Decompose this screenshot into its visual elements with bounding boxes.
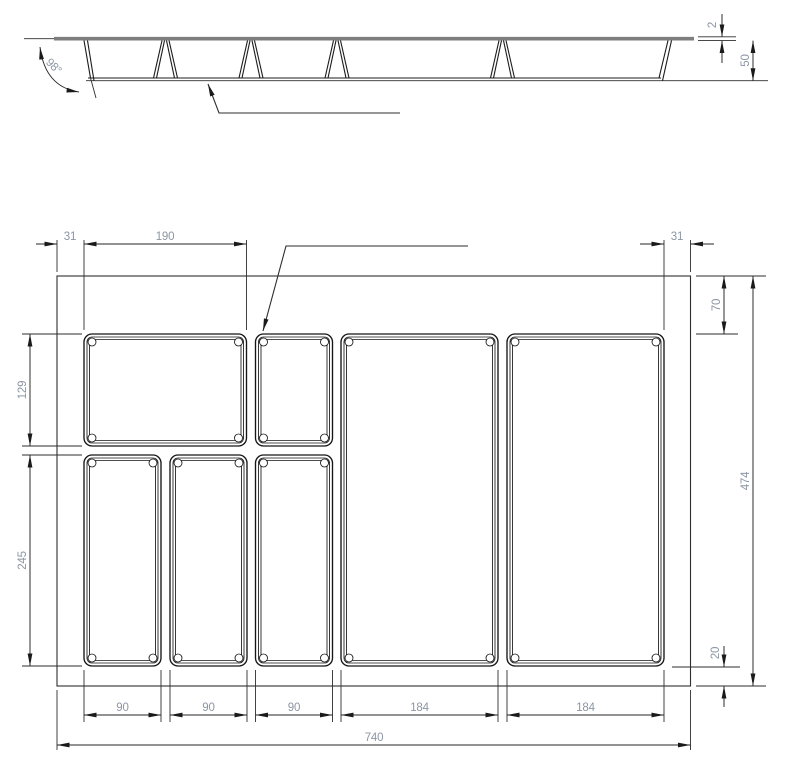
dim-label-col-2: 90 <box>202 702 214 714</box>
right-outer-wall <box>659 41 672 81</box>
left-outer-wall <box>84 41 96 99</box>
technical-drawing: 98° 2 50 <box>0 0 800 768</box>
dim-label-col-1: 90 <box>116 702 128 714</box>
rim-thickness-dimension: 2 <box>698 14 736 63</box>
dim-label-overall-depth: 474 <box>740 471 752 490</box>
tray-outline <box>57 276 691 686</box>
right-dimensions: 70 474 20 <box>672 276 766 707</box>
compartment-4 <box>507 334 664 666</box>
compartment-5 <box>84 455 161 666</box>
divider-wall-1 <box>154 41 178 79</box>
bottom-dimensions: 90 90 90 184 184 740 <box>57 670 691 750</box>
dim-label-bottom-row-height: 245 <box>17 551 29 570</box>
compartment-2 <box>256 334 333 446</box>
compartment-1 <box>84 334 247 446</box>
plan-view: 31 190 31 70 474 20 129 245 <box>17 231 766 750</box>
dim-label-col-3: 90 <box>288 702 300 714</box>
dim-label-wall-angle: 98° <box>43 57 63 77</box>
divider-wall-4 <box>491 41 515 79</box>
divider-wall-3 <box>325 41 349 79</box>
dim-label-top-offset: 70 <box>711 299 723 311</box>
dim-label-overall-width: 740 <box>365 732 384 744</box>
dim-label-left-margin: 31 <box>64 231 76 243</box>
plan-leader-line <box>263 246 468 331</box>
compartment-3 <box>341 334 498 666</box>
dim-label-col-4: 184 <box>410 702 429 714</box>
dim-label-right-margin: 31 <box>671 231 683 243</box>
section-leader-line <box>208 84 400 113</box>
dim-label-col-5: 184 <box>576 702 595 714</box>
dim-label-tray-depth: 50 <box>740 54 752 66</box>
left-dimensions: 129 245 <box>17 334 82 666</box>
compartment-7 <box>256 455 333 666</box>
divider-wall-2 <box>239 41 263 79</box>
dim-label-rim-thickness: 2 <box>707 22 719 28</box>
dim-label-top-row-height: 129 <box>17 381 29 400</box>
compartment-6 <box>170 455 247 666</box>
dim-label-first-compartment-width: 190 <box>156 231 175 243</box>
depth-dimension: 50 <box>740 41 753 81</box>
section-view: 98° 2 50 <box>24 14 768 113</box>
angle-dimension: 98° <box>40 47 79 92</box>
dim-label-bottom-offset: 20 <box>710 647 722 659</box>
